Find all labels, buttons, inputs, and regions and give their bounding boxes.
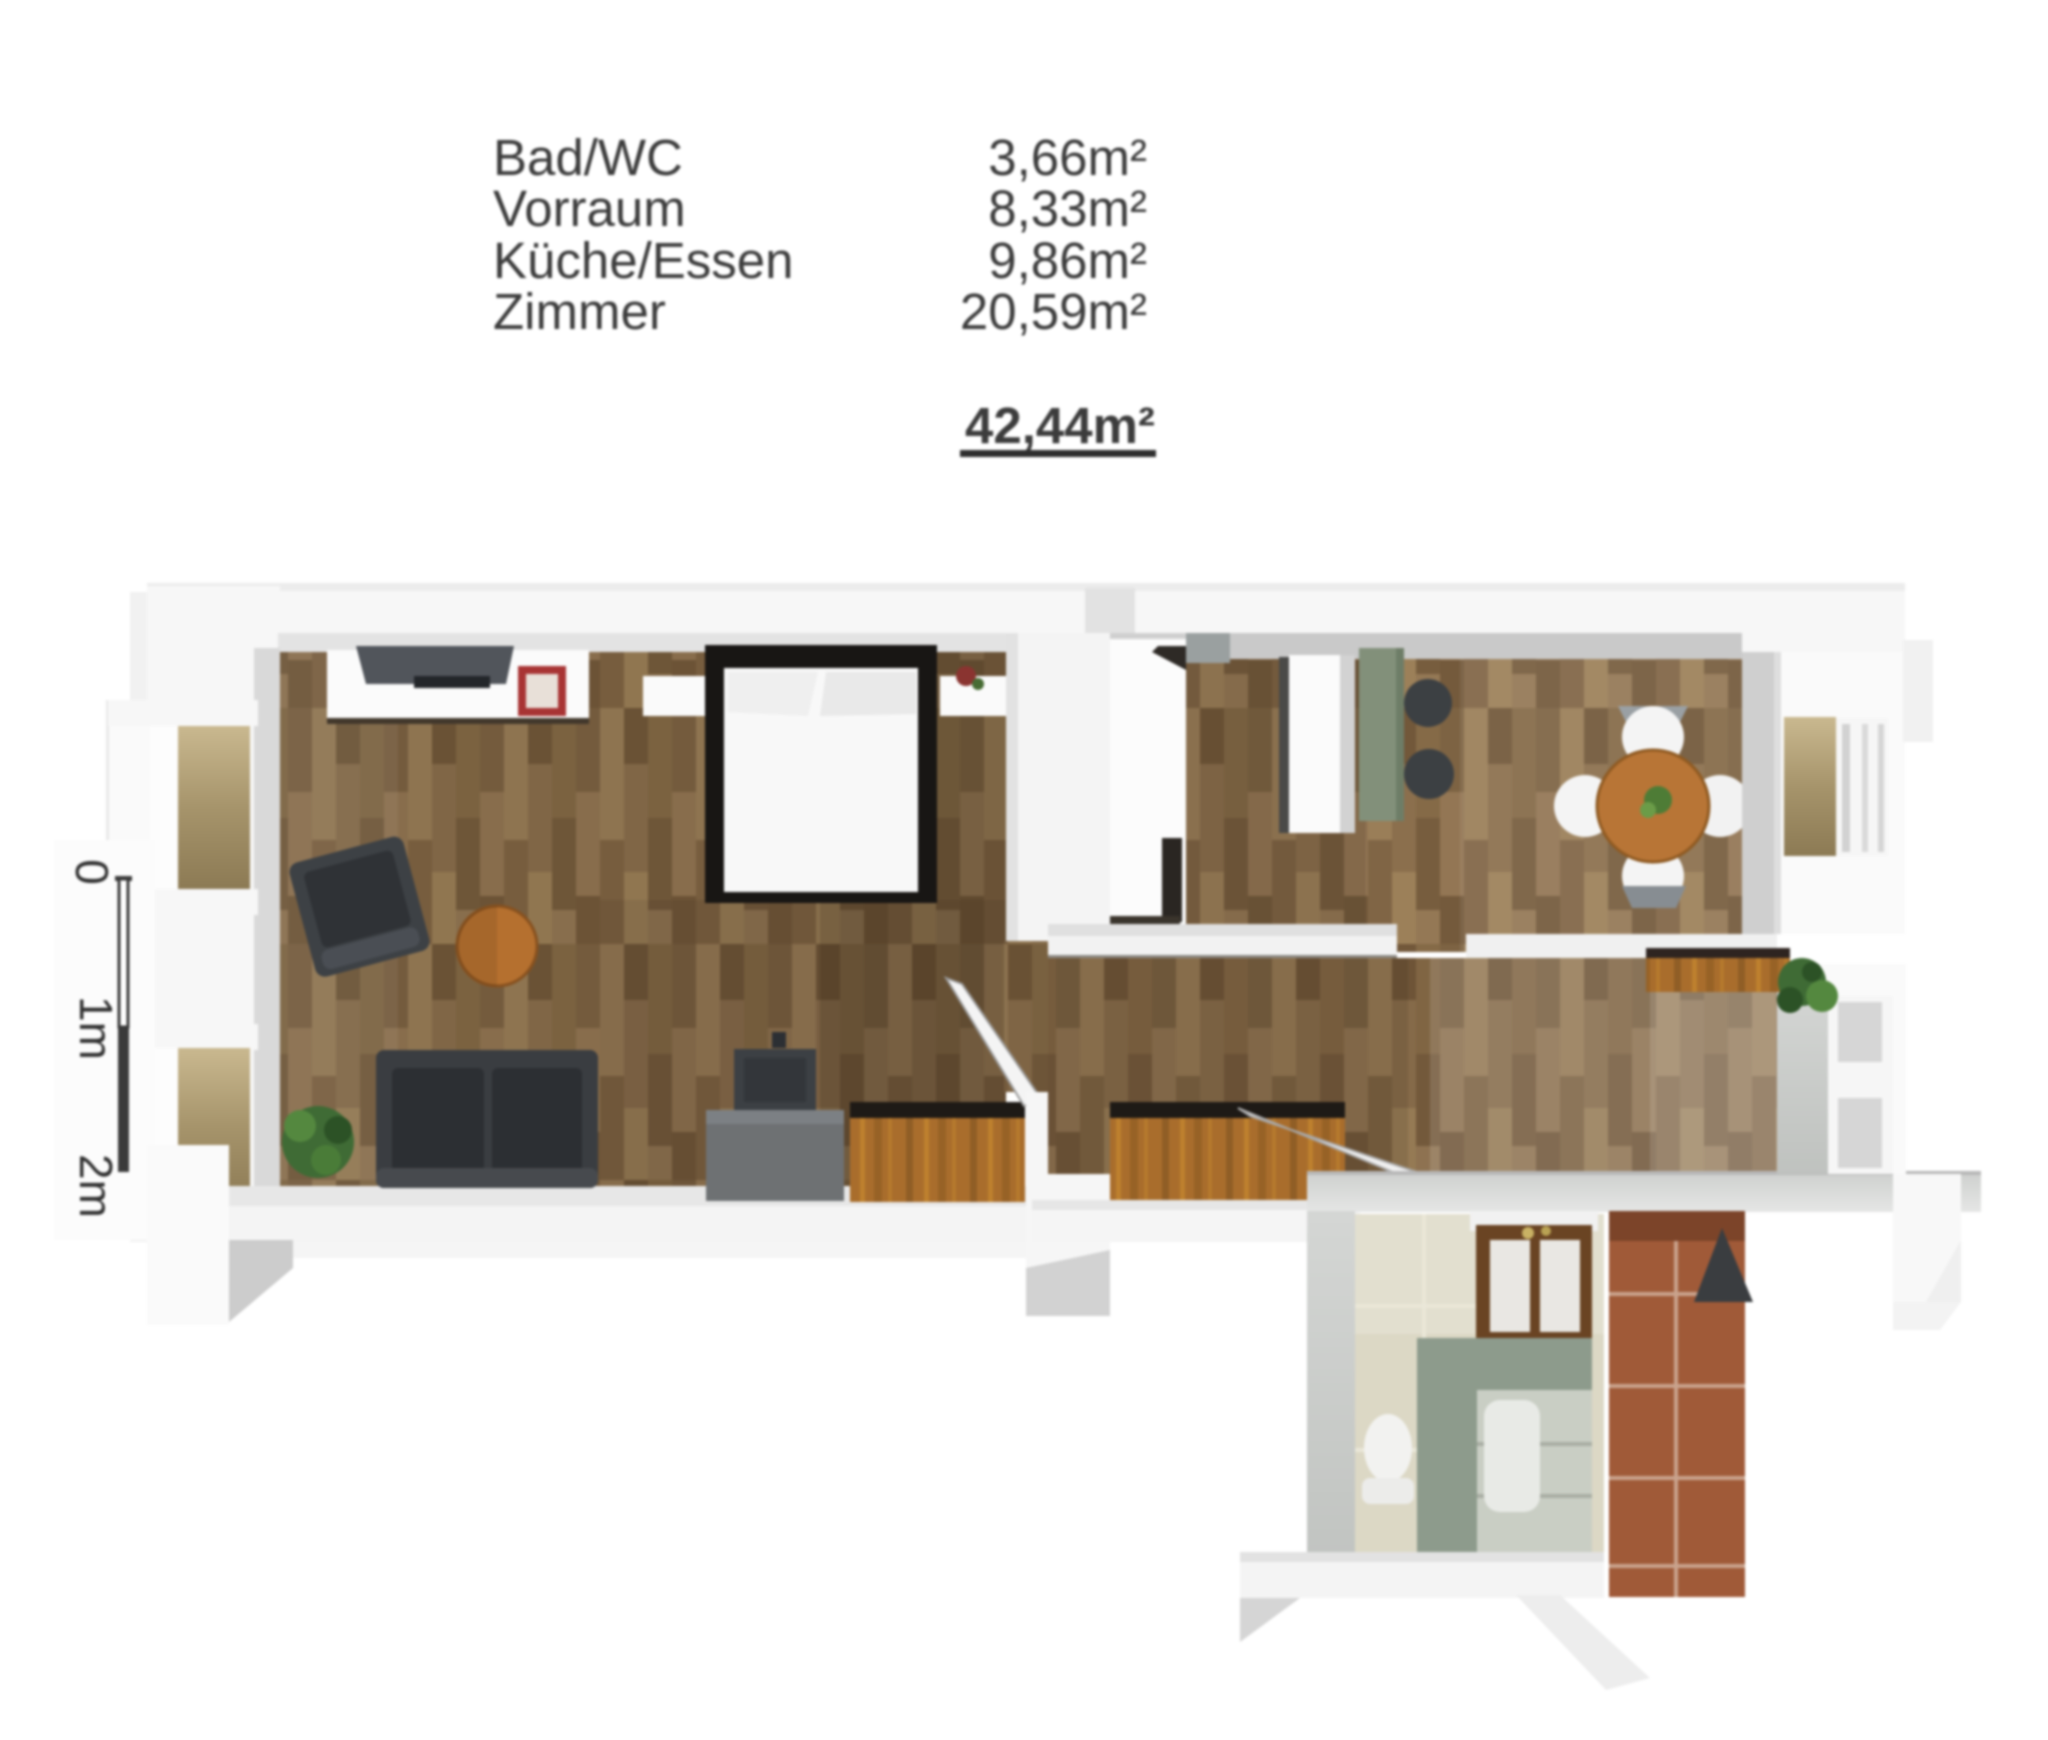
svg-text:9,86m²: 9,86m² [988,232,1147,289]
svg-text:1m: 1m [70,996,122,1060]
svg-text:20,59m²: 20,59m² [960,283,1147,340]
svg-text:Bad/WC: Bad/WC [493,129,683,186]
svg-text:8,33m²: 8,33m² [988,180,1147,237]
svg-text:42,44m²: 42,44m² [965,397,1155,454]
svg-text:2m: 2m [70,1154,122,1218]
svg-text:Vorraum: Vorraum [493,180,686,237]
svg-text:0: 0 [66,859,118,885]
svg-text:Zimmer: Zimmer [493,283,666,340]
svg-text:Küche/Essen: Küche/Essen [493,232,794,289]
svg-text:3,66m²: 3,66m² [988,129,1147,186]
